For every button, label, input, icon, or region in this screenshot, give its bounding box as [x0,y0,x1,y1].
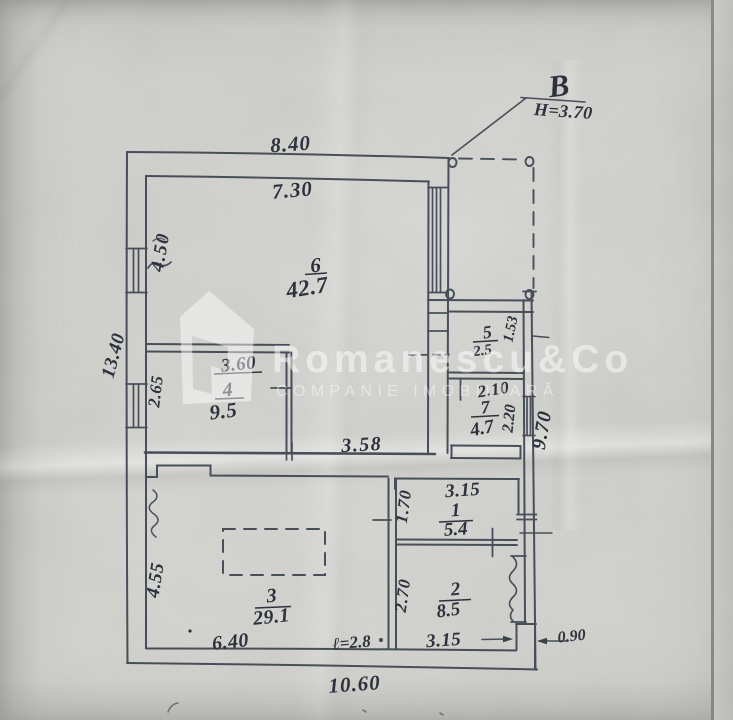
svg-text:3.15: 3.15 [443,479,481,502]
svg-text:Romanescu&Co: Romanescu&Co [272,338,633,381]
svg-text:8.5: 8.5 [435,598,462,622]
svg-text:3: 3 [265,585,278,608]
svg-text:H=3.70: H=3.70 [532,99,593,123]
svg-text:3.15: 3.15 [424,629,462,652]
svg-text:ℓ=2.8: ℓ=2.8 [332,631,372,653]
svg-text:8.40: 8.40 [269,131,311,158]
svg-text:COMPANIE IMOBILIARĂ: COMPANIE IMOBILIARĂ [276,381,559,400]
svg-text:5.4: 5.4 [443,518,468,541]
svg-text:2.65: 2.65 [144,374,167,409]
svg-text:6.40: 6.40 [211,629,250,655]
svg-text:10.60: 10.60 [328,670,382,698]
svg-text:7.30: 7.30 [271,176,314,203]
svg-text:3.58: 3.58 [340,433,383,457]
svg-text:2.20: 2.20 [500,404,520,435]
svg-text:B: B [545,67,571,104]
svg-text:0.90: 0.90 [557,627,587,647]
svg-text:29.1: 29.1 [251,604,291,630]
